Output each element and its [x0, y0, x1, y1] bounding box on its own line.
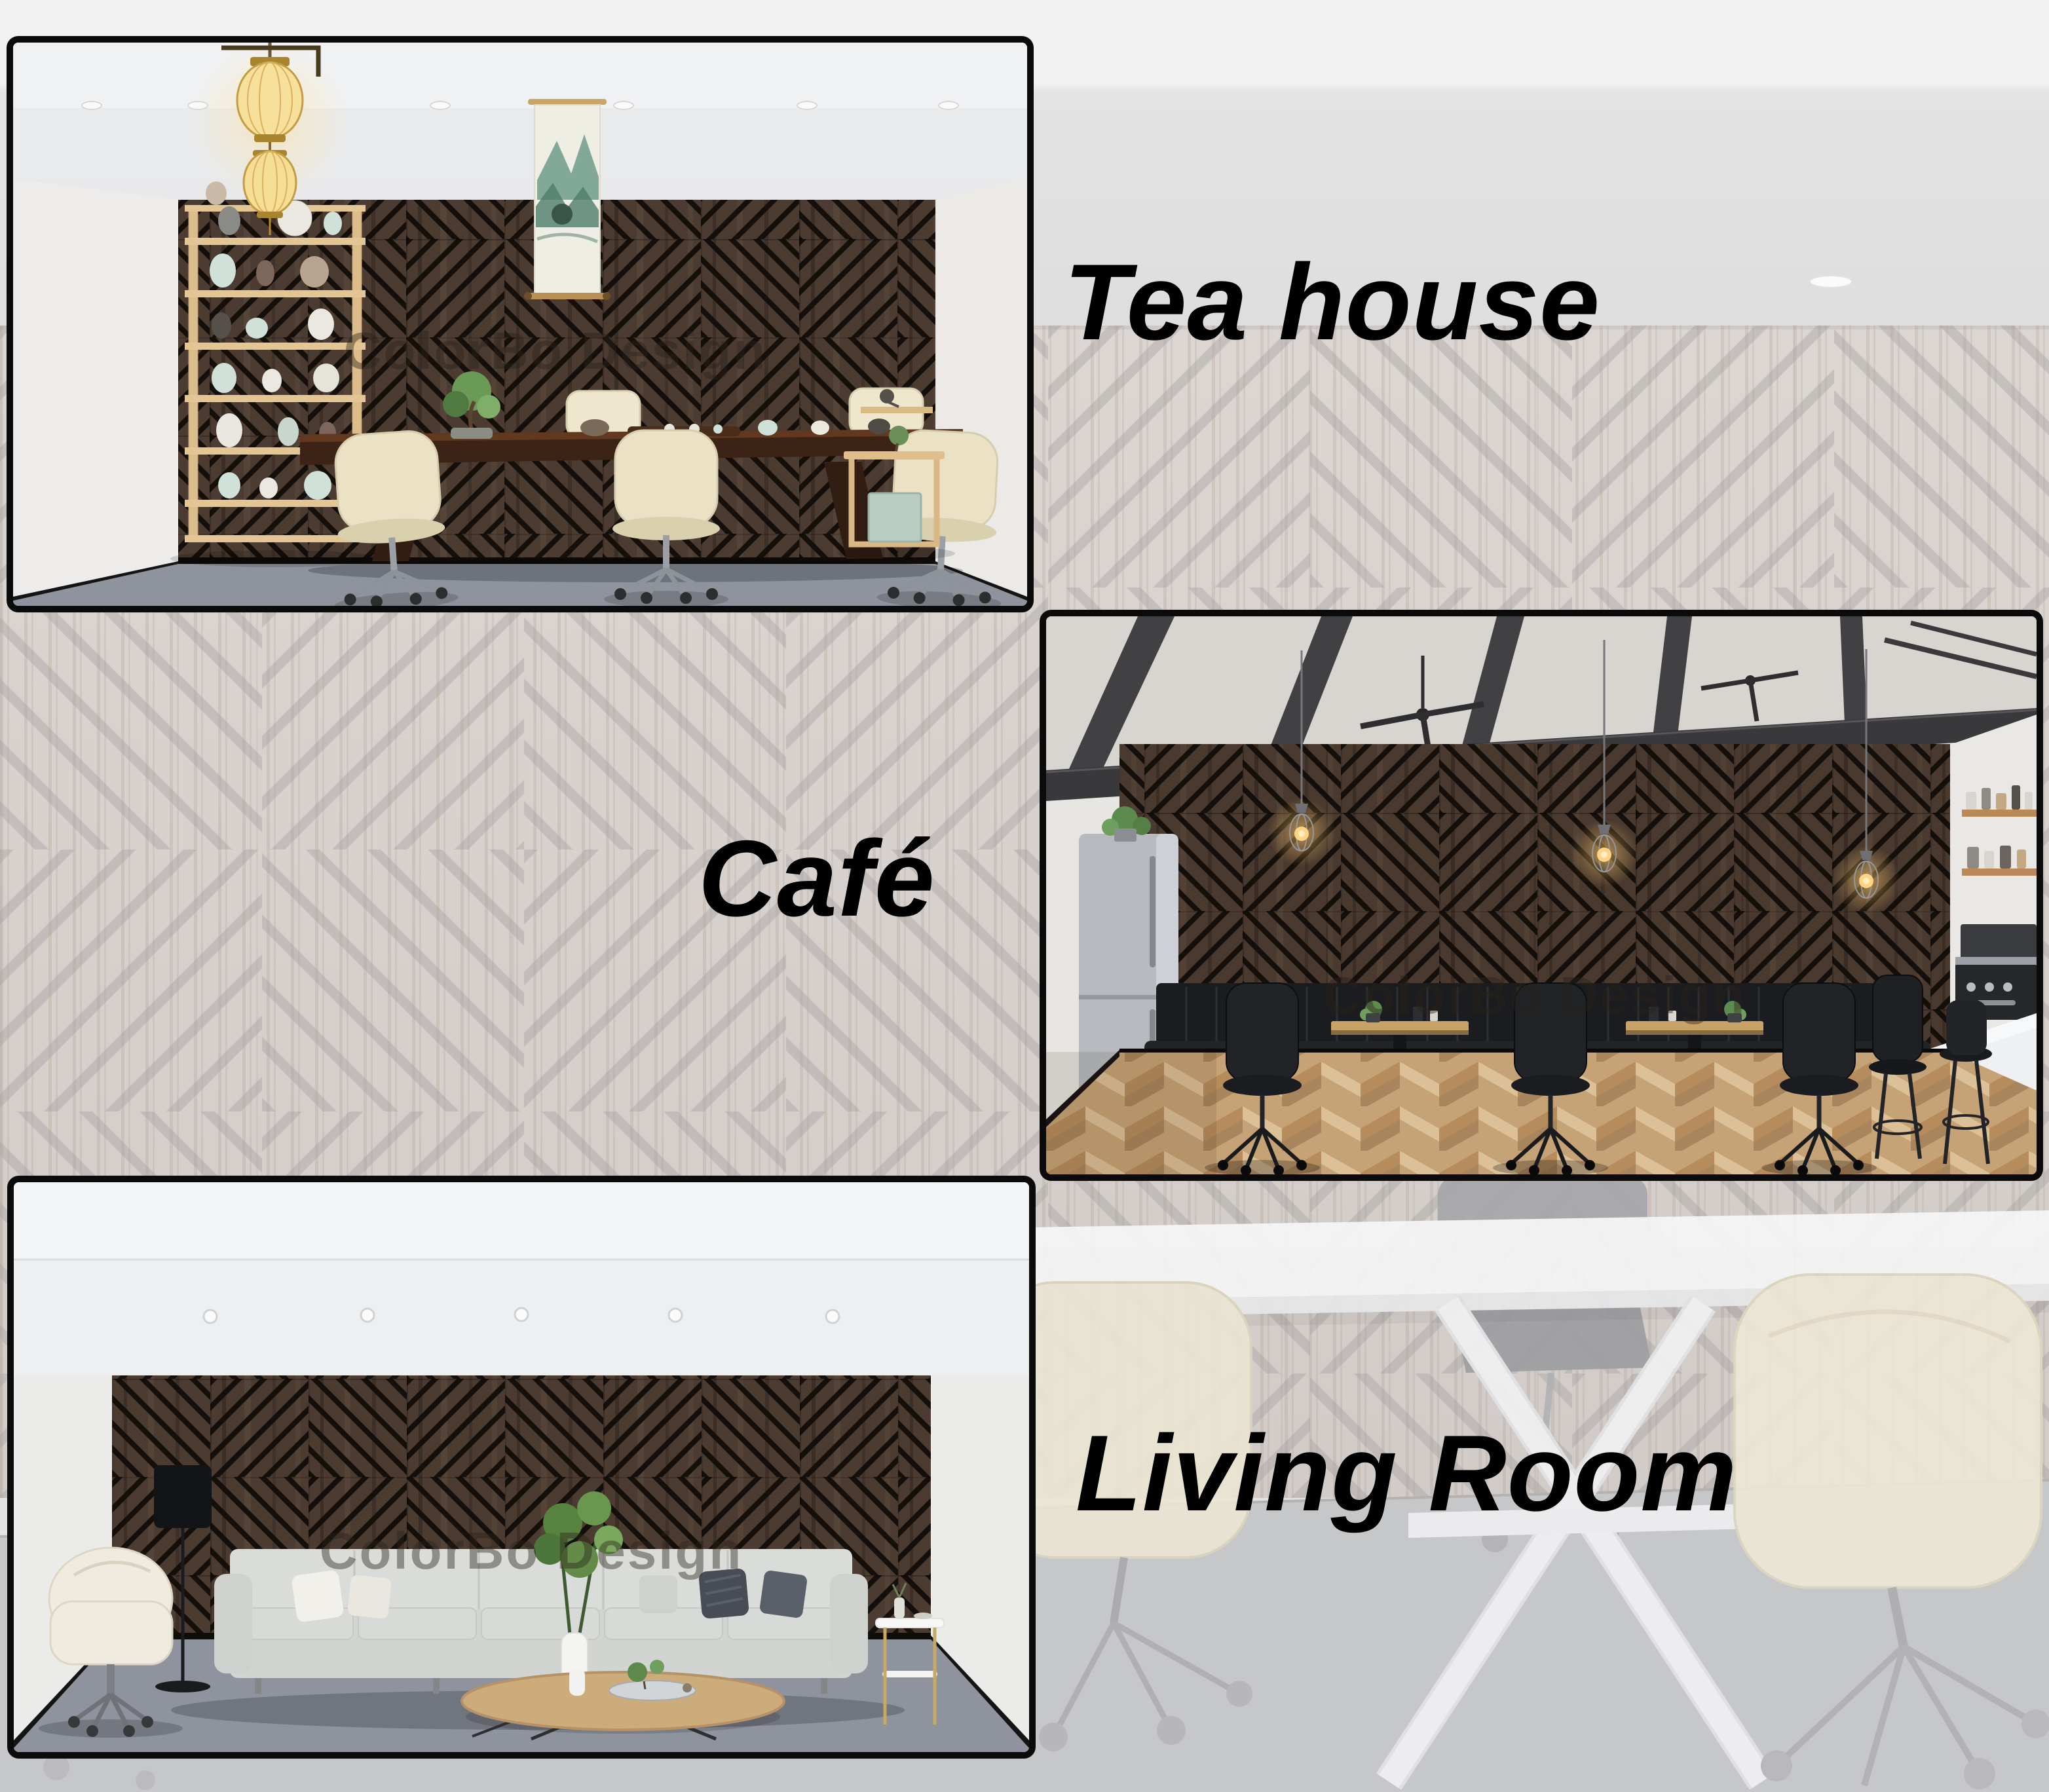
cafe-pendant-light: [1570, 819, 1638, 887]
tea-left-wall: [13, 179, 178, 605]
collage-canvas: ColorBo Design: [0, 0, 2049, 1792]
tea-scroll-painting: [524, 99, 611, 300]
cafe-pendant-light: [1268, 798, 1336, 867]
cafe-pendant-light: [1832, 846, 1900, 914]
watermark: ColorBo Design: [320, 1521, 743, 1580]
backdrop-downlight: [1809, 275, 1852, 288]
cafe-label: Café: [698, 820, 935, 937]
living-room-label: Living Room: [1076, 1415, 1737, 1531]
cafe-photo: ColorBo Design: [1040, 610, 2043, 1181]
tea-house-photo: ColorBo Design: [7, 36, 1034, 612]
watermark: ColorBo Design: [344, 322, 767, 380]
living-room-photo: ColorBo Design: [7, 1176, 1036, 1759]
tea-house-label: Tea house: [1064, 244, 1600, 360]
faded-caster: [136, 1770, 155, 1790]
watermark: ColorBo Design: [1323, 966, 1746, 1024]
